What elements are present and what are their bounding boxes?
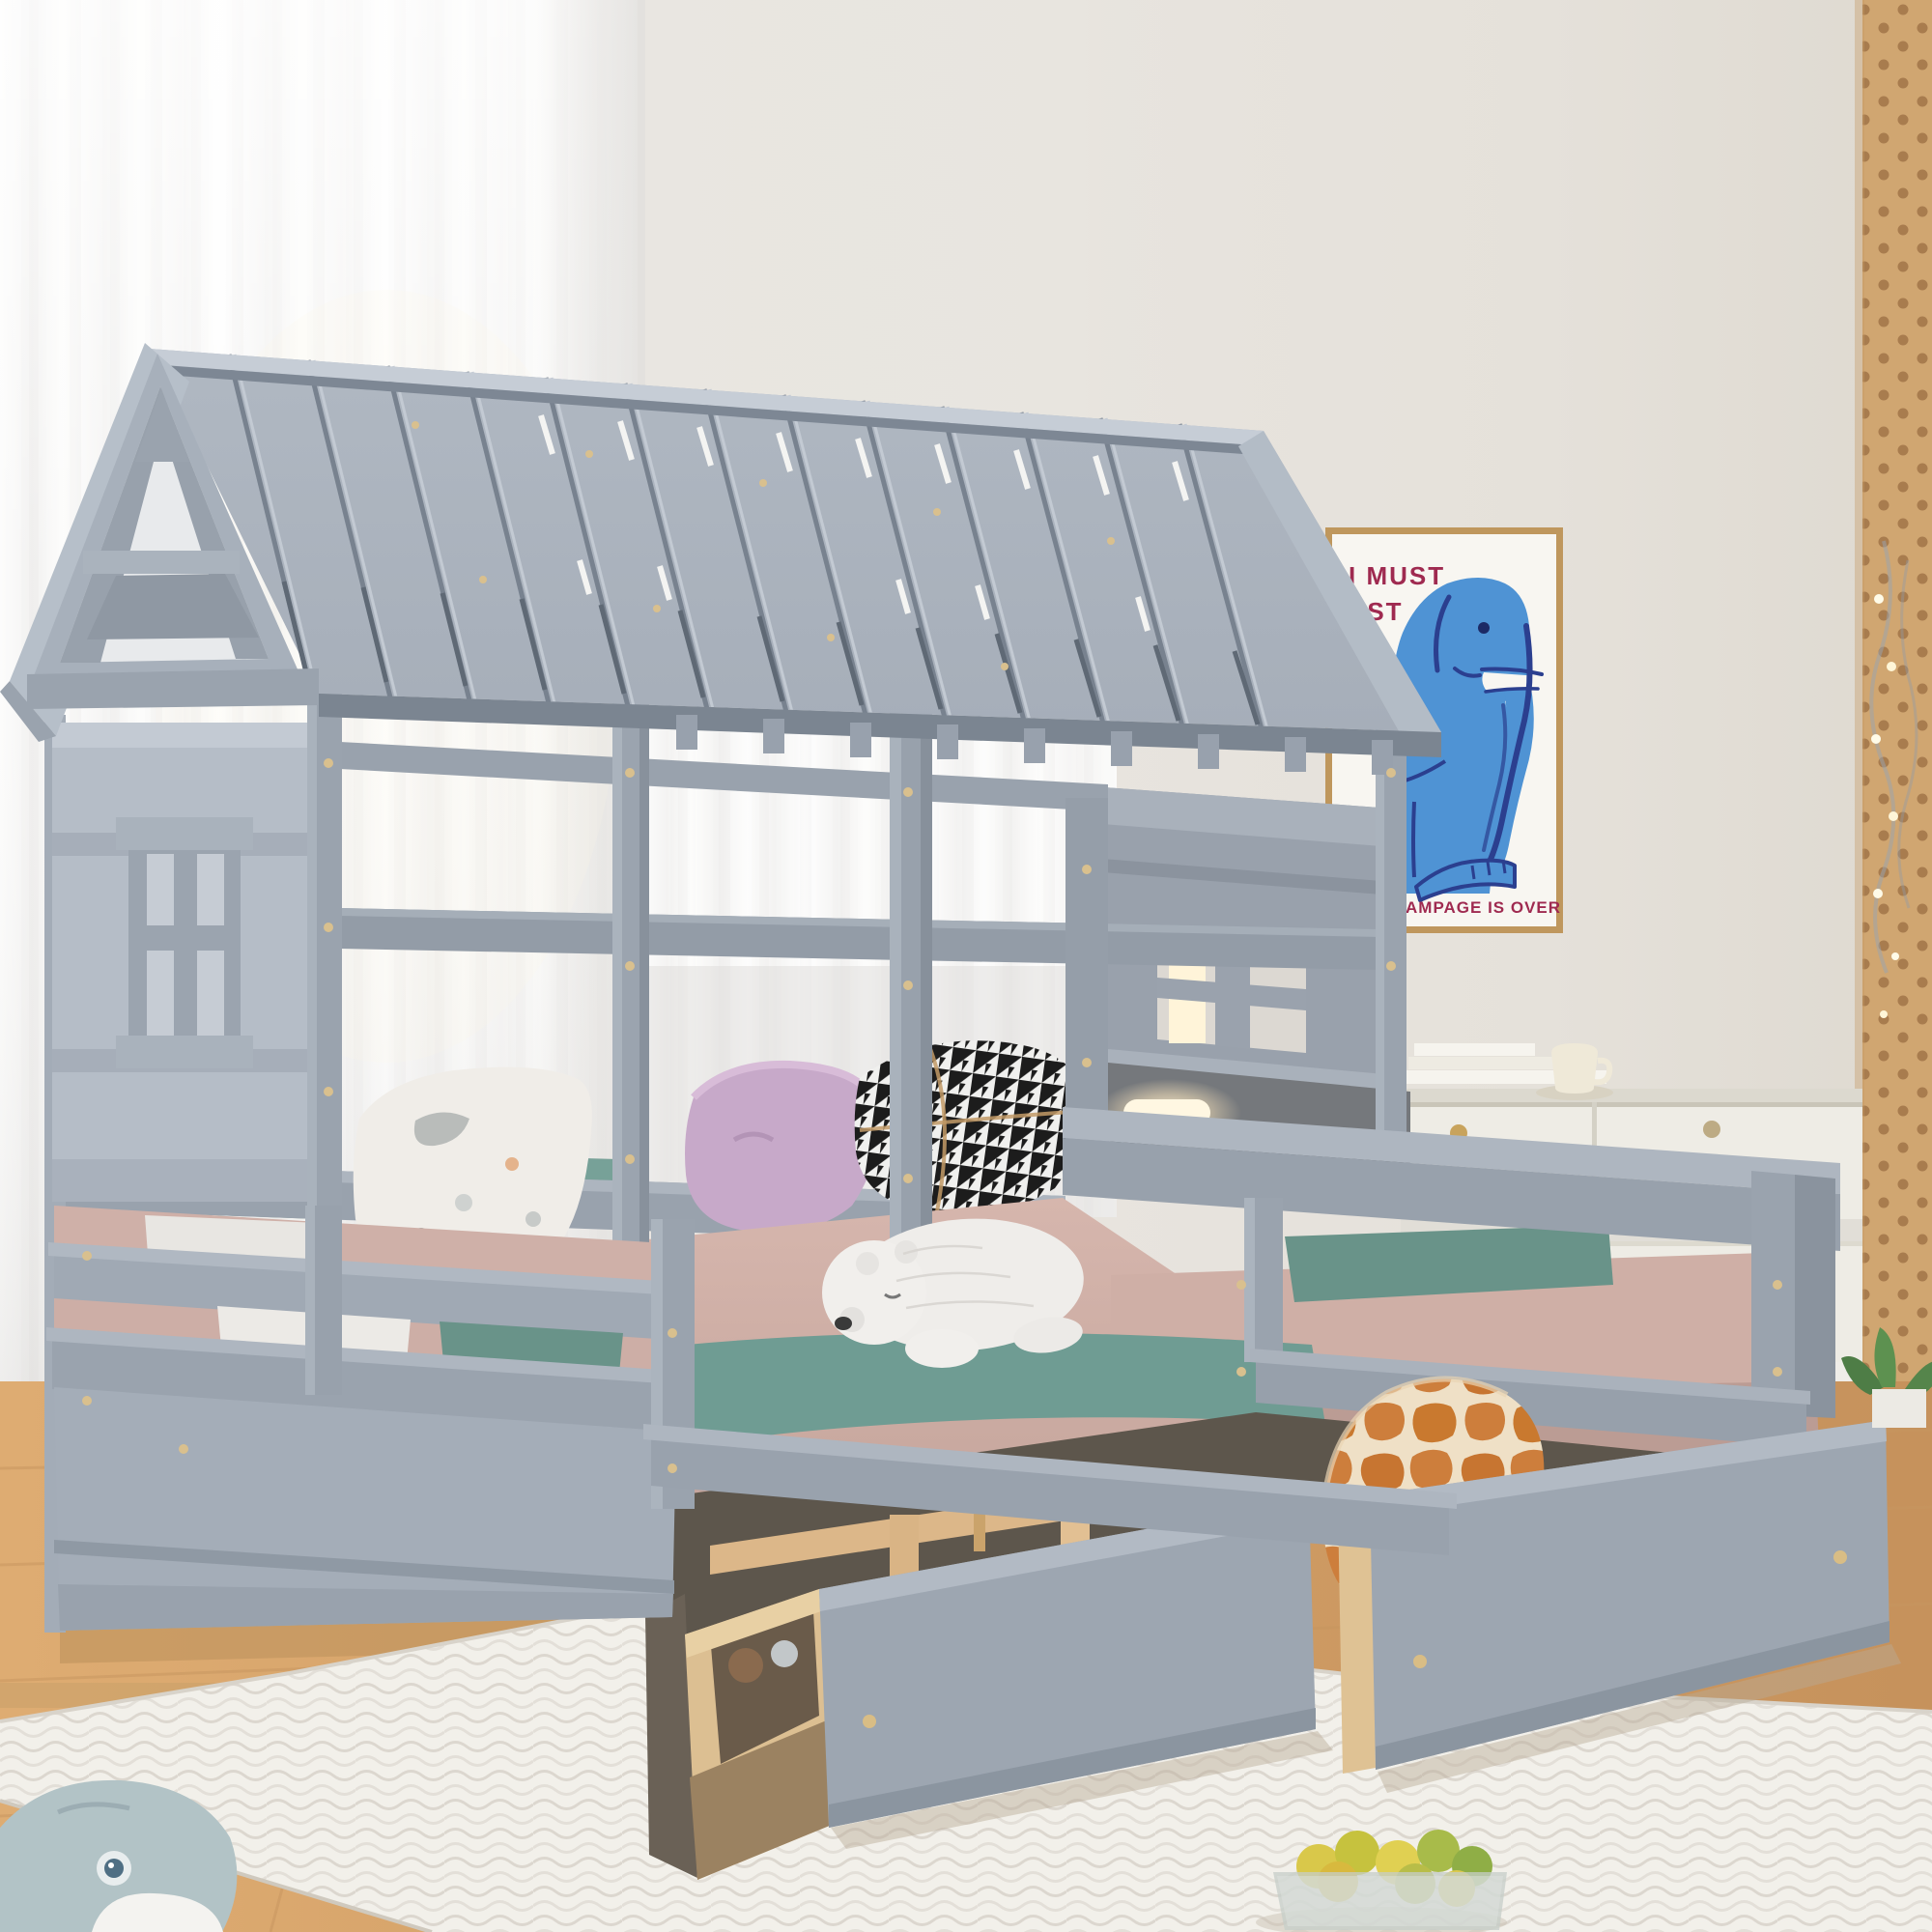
svg-text:I MUST: I MUST — [1349, 561, 1445, 590]
svg-text:AMPAGE IS OVER: AMPAGE IS OVER — [1406, 898, 1561, 917]
